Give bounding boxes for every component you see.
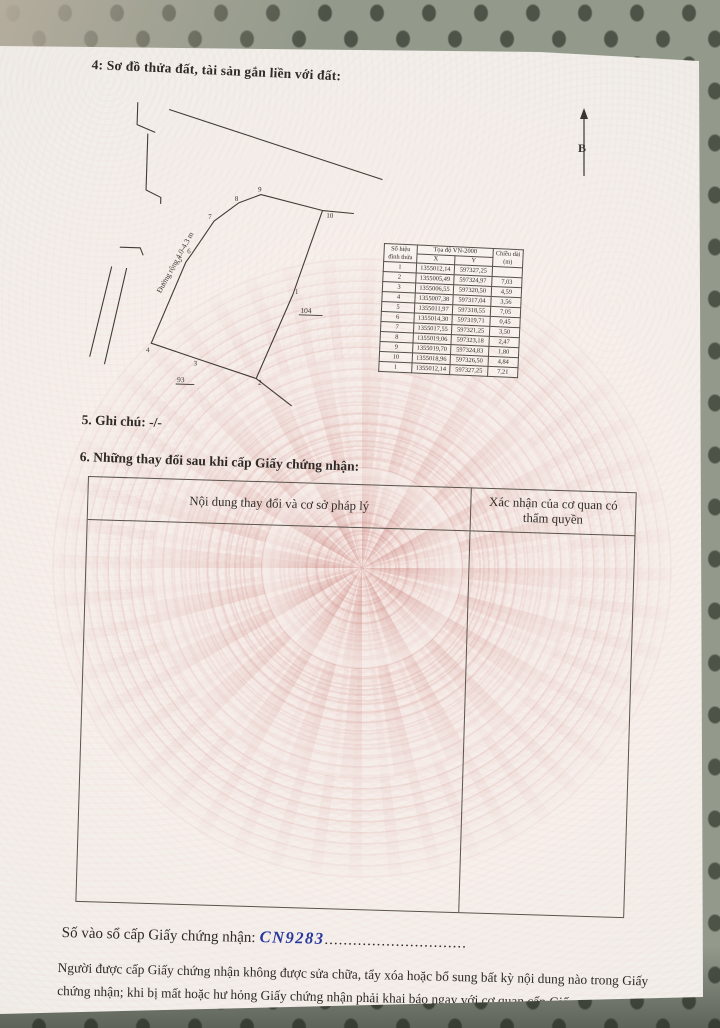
photo-of-land-certificate: { "document": { "section4_title": "4: Sơ…	[0, 0, 720, 1028]
vertex-label: 7	[208, 213, 212, 221]
north-arrow: B	[566, 106, 602, 184]
vertex-label: 3	[193, 360, 197, 368]
coord-header-length: Chiều dài (m)	[493, 248, 524, 267]
coord-cell: 1355012,14	[412, 363, 450, 375]
vertex-label: 9	[258, 185, 262, 193]
coord-header-vertex: Số hiệu đỉnh thửa	[384, 244, 418, 263]
adjacent-parcel-104: 104	[300, 306, 312, 315]
north-label: B	[578, 141, 586, 155]
registry-dotted-line: ..............................	[324, 932, 467, 952]
vertex-label: 2	[258, 379, 262, 387]
changes-table-body	[76, 520, 634, 917]
vertex-label: 8	[235, 195, 239, 203]
adjacent-boundary-top	[167, 110, 385, 193]
road-edge-lower-left	[90, 266, 112, 357]
parcel-boundary	[150, 191, 323, 380]
coordinate-table: Số hiệu đỉnh thửa Tọa độ VN-2000 Chiều d…	[378, 243, 524, 378]
changes-col1-empty	[76, 520, 470, 912]
cadastral-diagram: 1 2 3 4 5 6 7 8 9 10 104 93 Đường rộng 4…	[75, 95, 385, 419]
changes-table: Nội dung thay đổi và cơ sở pháp lý Xác n…	[75, 476, 636, 918]
certificate-paper: 4: Sơ đồ thửa đất, tài sản gắn liền với …	[0, 0, 720, 1028]
vertex-label: 1	[295, 288, 299, 296]
adjacent-parcel-93: 93	[177, 375, 185, 384]
road-edge-step	[120, 247, 143, 255]
coord-table-body: 11355012,14597327,2521355005,49597324,97…	[379, 262, 523, 378]
registry-number-handwritten: CN9283	[255, 927, 324, 948]
coord-cell: 7,21	[488, 366, 518, 377]
coord-cell: 1	[379, 361, 412, 372]
changes-col2-header: Xác nhận của cơ quan có thẩm quyền	[471, 488, 636, 535]
road-width-label: Đường rộng 4.0-4.3 m	[155, 230, 196, 294]
coord-cell: 597327,25	[450, 365, 488, 377]
section5-note: 5. Ghi chú: -/-	[81, 412, 162, 431]
north-arrow-head	[580, 108, 588, 119]
vertex-label: 4	[146, 346, 150, 354]
road-edge-upper	[137, 103, 156, 133]
vertex-label: 10	[326, 212, 334, 220]
road-edge-mid	[146, 134, 163, 203]
